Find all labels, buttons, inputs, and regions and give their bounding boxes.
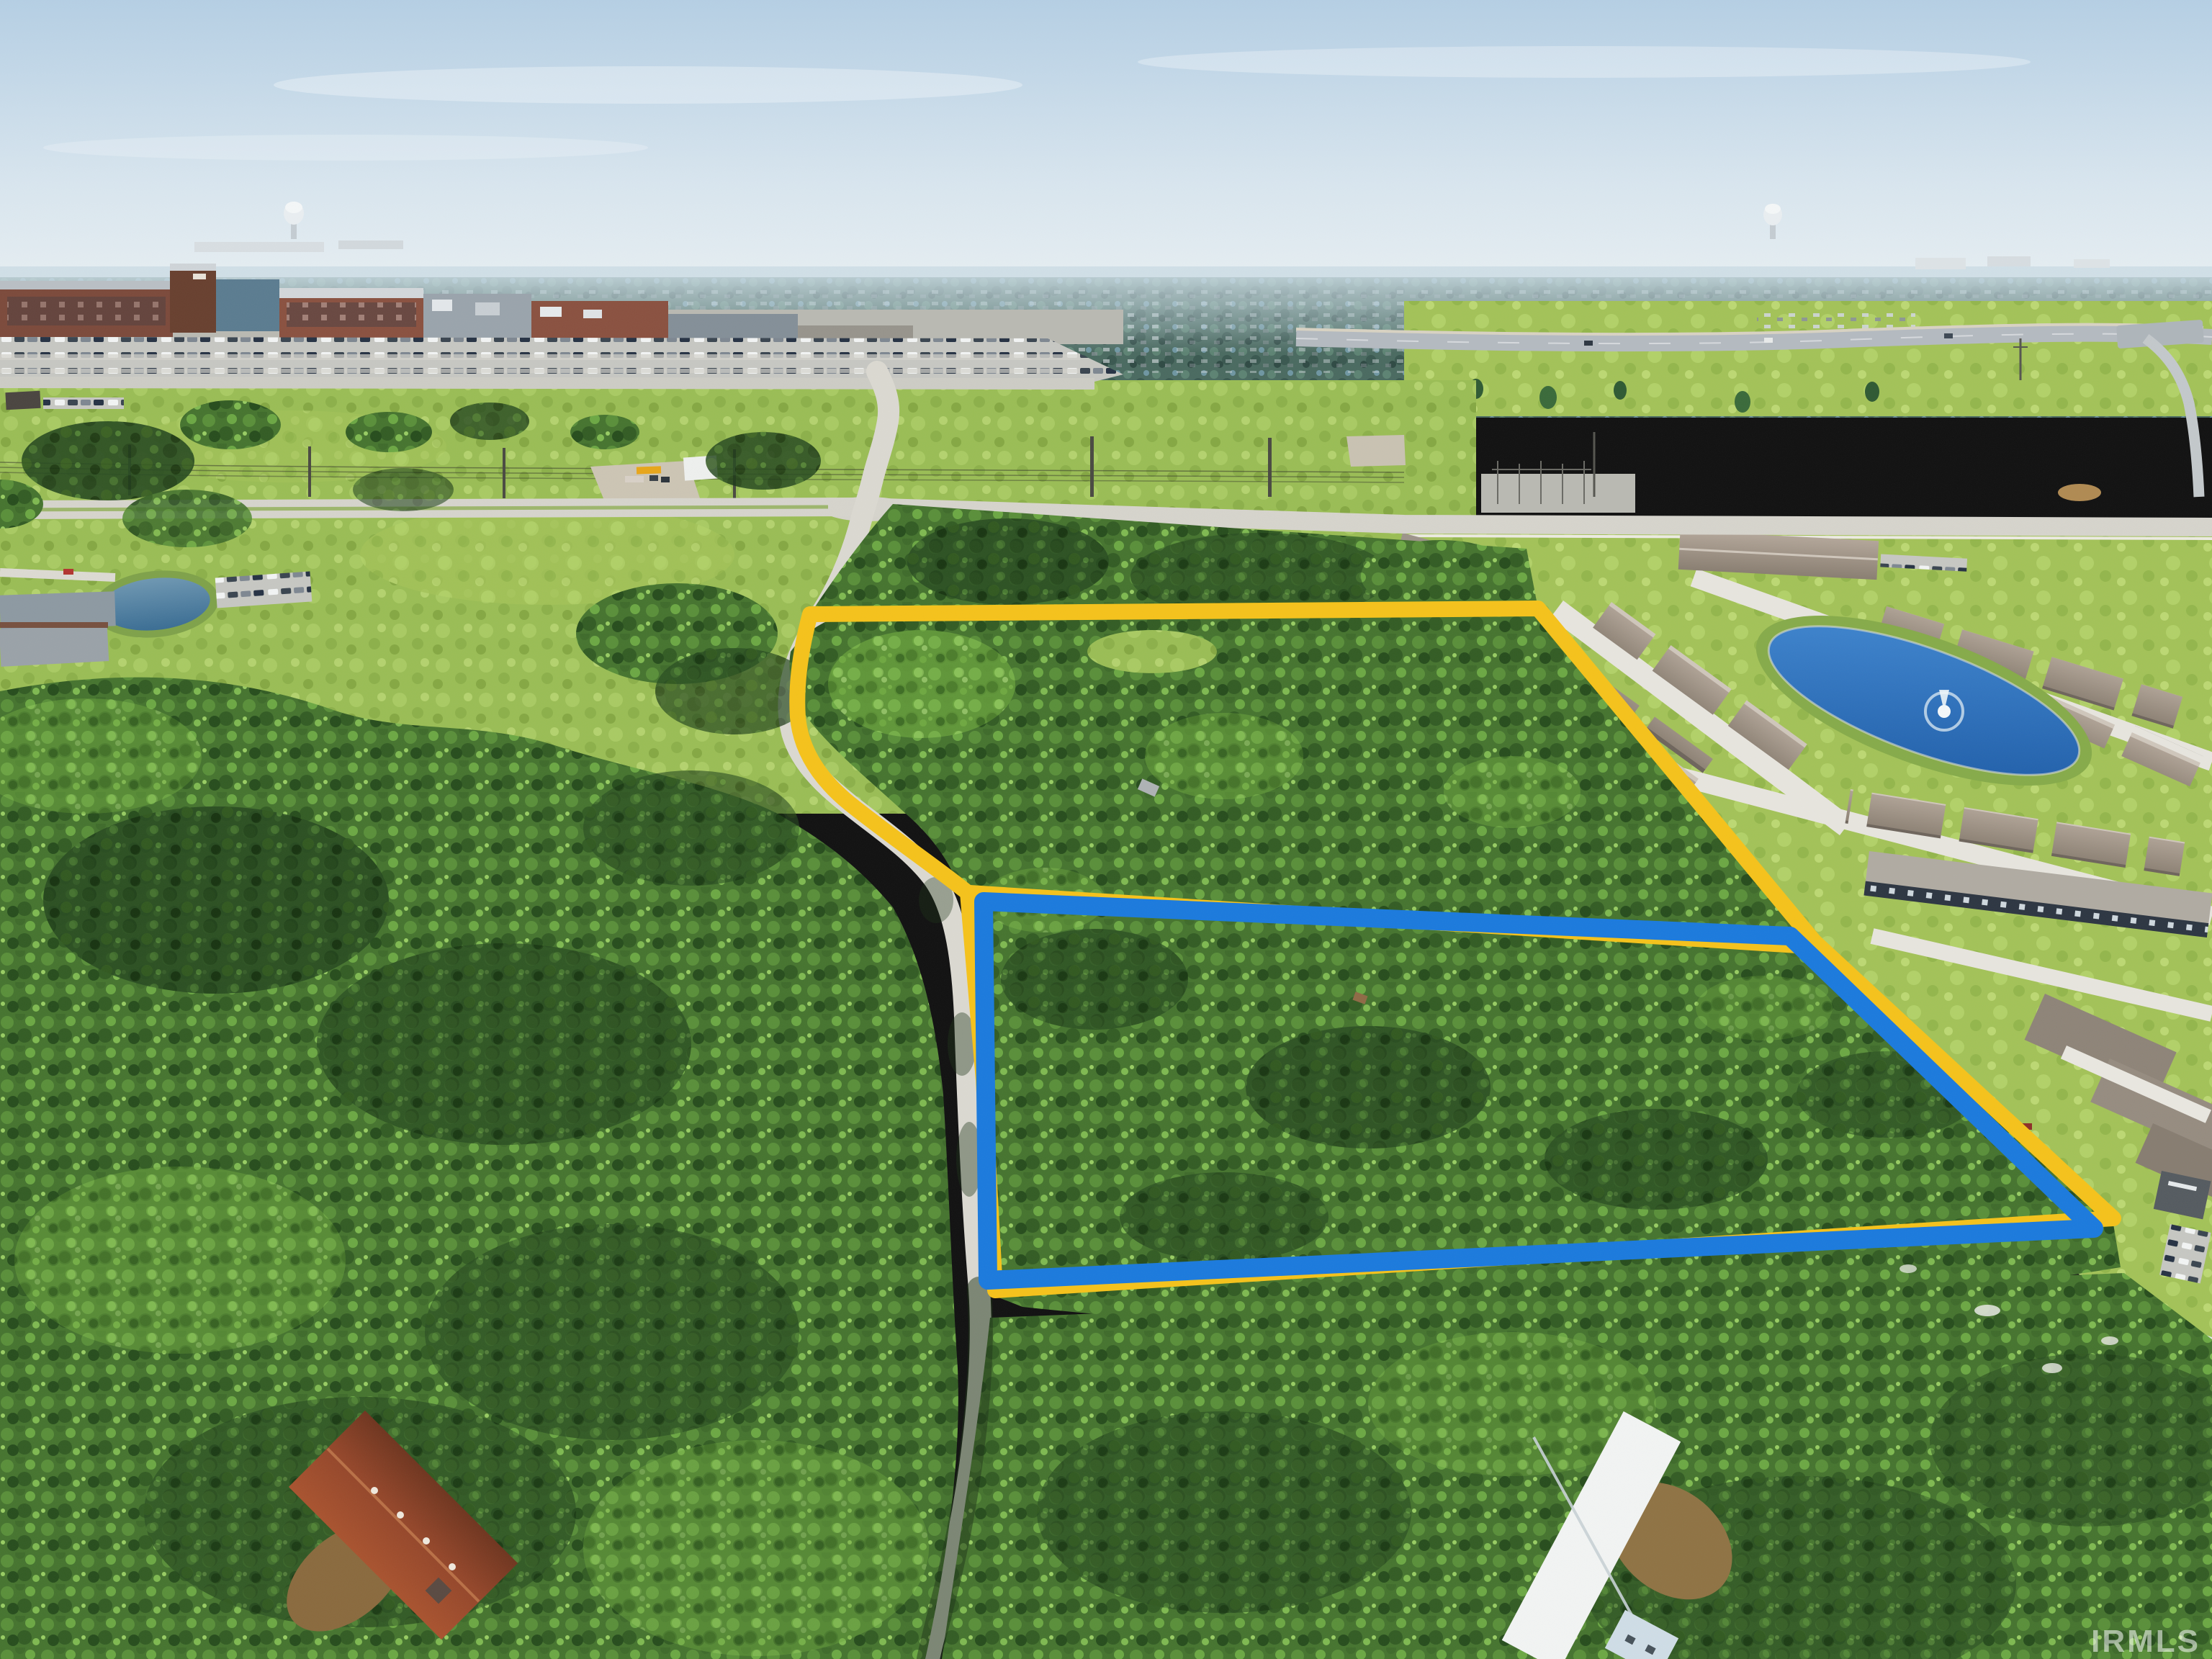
watermark-text: IRMLS <box>2091 1624 2200 1659</box>
aerial-photo: IRMLS <box>0 0 2212 1659</box>
aerial-photo-canvas: IRMLS <box>0 0 2212 1659</box>
grain-overlay <box>0 0 2212 1659</box>
